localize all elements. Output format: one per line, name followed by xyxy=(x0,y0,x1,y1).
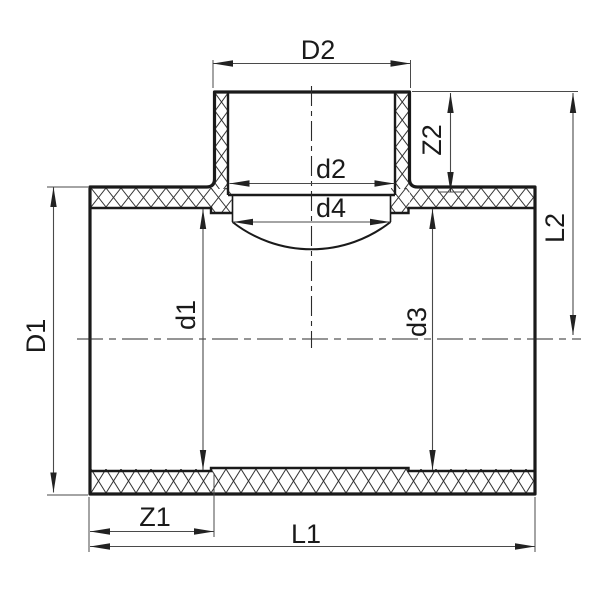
tee-outer-profile xyxy=(90,92,535,494)
hatch-bottom-wall xyxy=(91,469,534,493)
arrowhead-right xyxy=(194,528,214,534)
dimension-L2: L2 xyxy=(540,93,576,335)
arrowhead-right xyxy=(391,60,411,66)
arrowhead-down xyxy=(200,450,206,470)
hatch-right-junction xyxy=(391,188,410,212)
arrowhead-right xyxy=(515,543,535,549)
inner-bore-edges xyxy=(90,93,535,471)
dimension-label-d3: d3 xyxy=(402,307,432,337)
dimension-D2: D2 xyxy=(213,35,411,88)
arrowhead-down xyxy=(50,473,56,493)
dimension-label-L2: L2 xyxy=(540,213,570,243)
section-hatching xyxy=(91,93,534,493)
arrowhead-up xyxy=(429,209,435,229)
bore-top-left-edge xyxy=(90,208,233,213)
hatch-branch-right-wall xyxy=(396,93,410,189)
arrowhead-up xyxy=(447,93,453,113)
arrowhead-up xyxy=(570,93,576,113)
arrowhead-left xyxy=(90,528,110,534)
arrowhead-up xyxy=(50,187,56,207)
arrowhead-left xyxy=(230,180,250,186)
pipe-tee-technical-drawing: D2 d2 d4 Z2 L2 D1 xyxy=(0,0,600,600)
dimension-label-D2: D2 xyxy=(301,35,336,65)
dimension-label-d1: d1 xyxy=(171,300,201,330)
drawing-canvas: D2 d2 d4 Z2 L2 D1 xyxy=(0,0,600,600)
dimension-D1: D1 xyxy=(21,187,88,495)
dimension-label-L1: L1 xyxy=(291,519,321,549)
dimension-label-D1: D1 xyxy=(21,319,51,354)
arrowhead-down xyxy=(429,450,435,470)
dimension-label-d4: d4 xyxy=(316,193,346,223)
dimension-label-d2: d2 xyxy=(316,154,346,184)
dimension-Z2: Z2 xyxy=(412,92,578,193)
dimension-label-Z1: Z1 xyxy=(139,502,171,532)
arrowhead-right xyxy=(375,180,395,186)
dimension-label-Z2: Z2 xyxy=(417,124,447,156)
branch-socket-walls xyxy=(228,93,395,195)
arrowhead-left xyxy=(213,60,233,66)
arrowhead-left xyxy=(90,543,110,549)
arrowhead-up xyxy=(200,209,206,229)
hatch-right-shoulder xyxy=(410,188,534,207)
bore-top-right-edge xyxy=(391,208,536,213)
hatch-left-shoulder xyxy=(91,188,213,207)
hatch-branch-left-wall xyxy=(215,93,228,189)
arrowhead-down xyxy=(570,315,576,335)
